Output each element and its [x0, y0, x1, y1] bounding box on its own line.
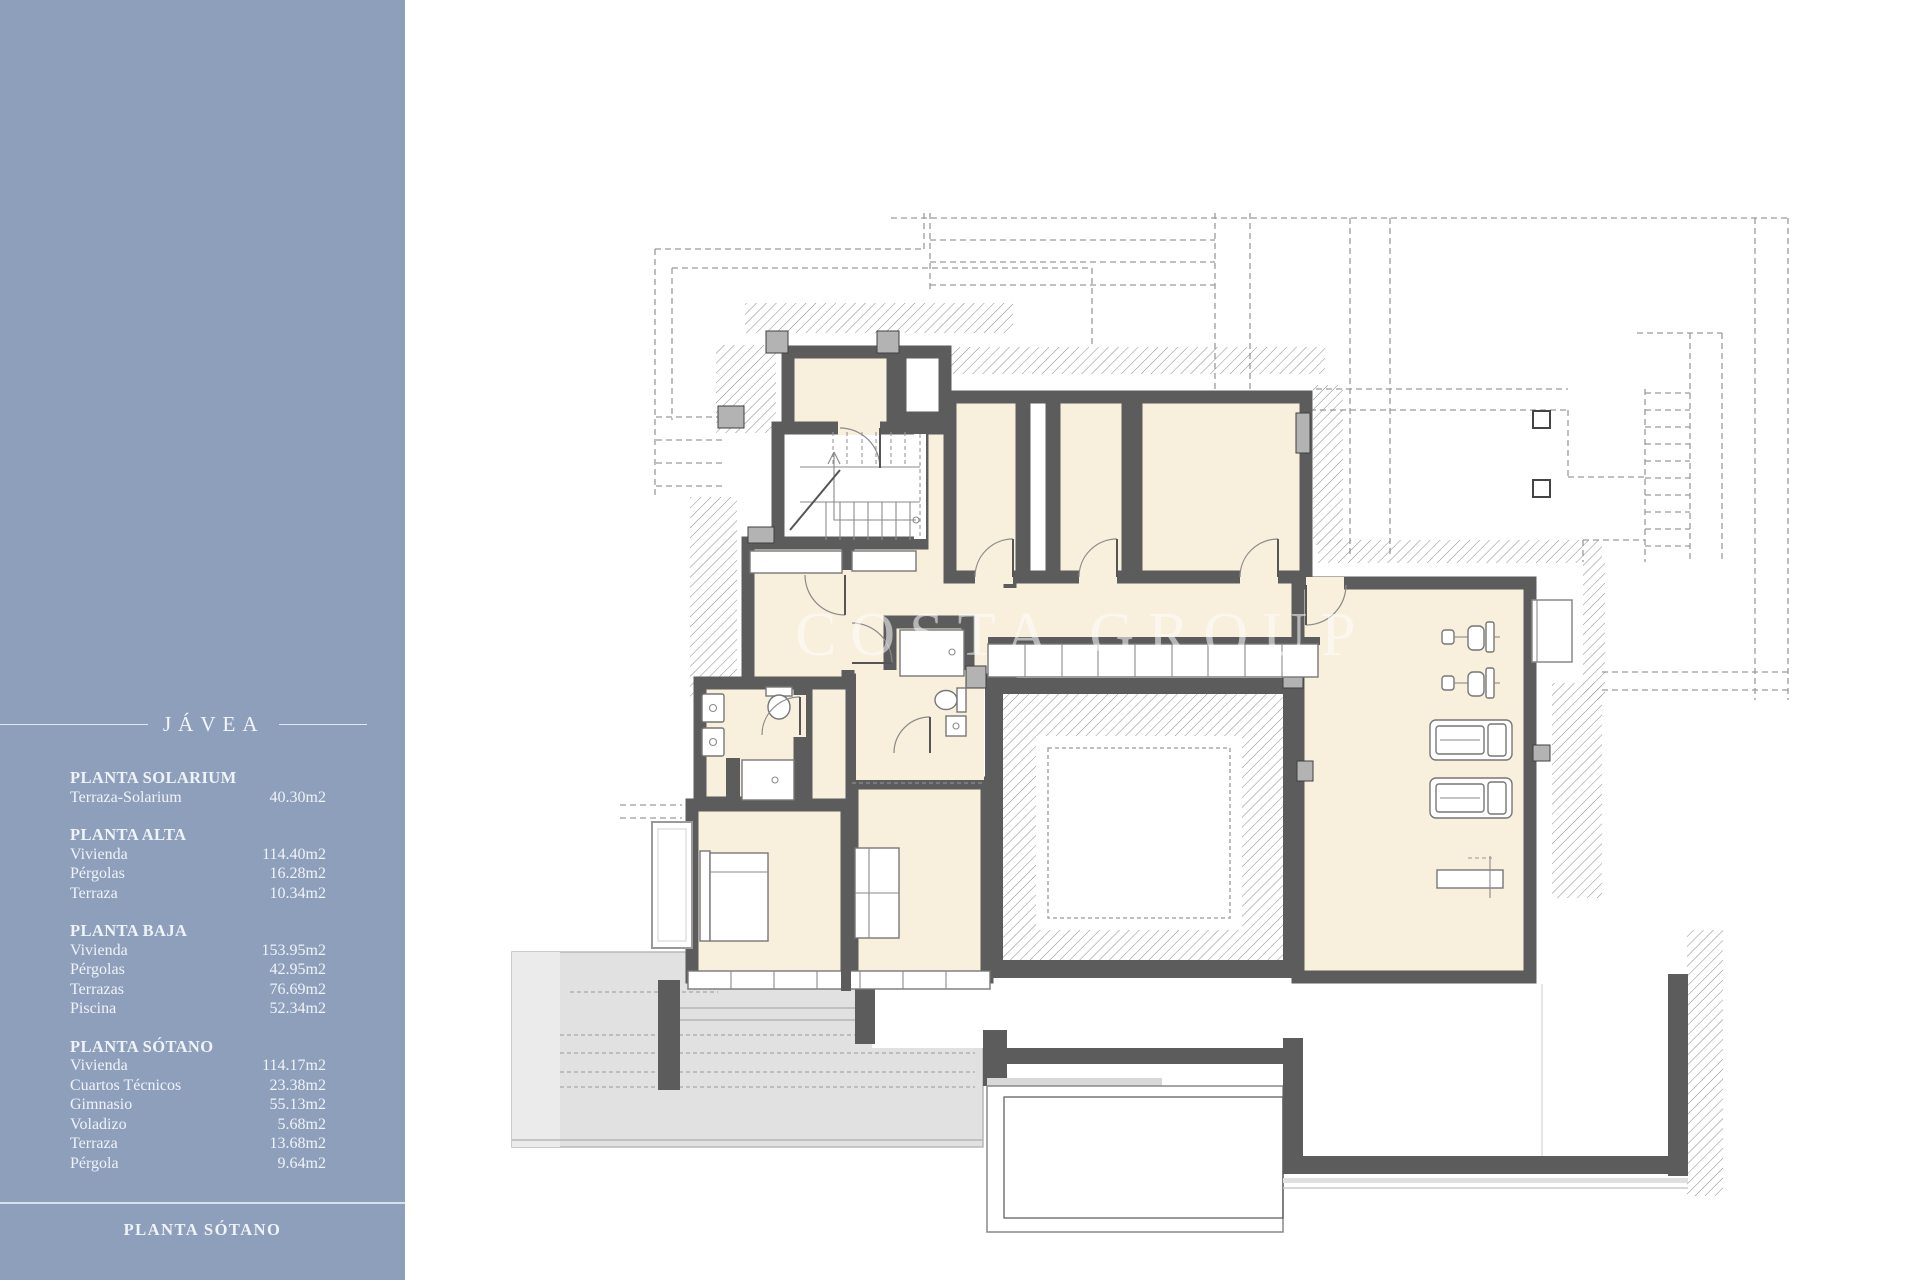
- area-row: Terrazas76.69m2: [70, 980, 326, 1000]
- area-value: 13.68m2: [270, 1134, 326, 1154]
- window-row: [688, 969, 990, 991]
- area-section: PLANTA SOLARIUMTerraza-Solarium40.30m2: [70, 768, 326, 807]
- area-row: Piscina52.34m2: [70, 999, 326, 1019]
- area-value: 55.13m2: [270, 1095, 326, 1115]
- area-value: 5.68m2: [278, 1115, 326, 1135]
- area-label: Vivienda: [70, 845, 128, 865]
- area-row: Voladizo5.68m2: [70, 1115, 326, 1135]
- area-label: Voladizo: [70, 1115, 127, 1135]
- area-row: Pérgolas16.28m2: [70, 864, 326, 884]
- area-label: Pérgolas: [70, 864, 125, 884]
- planter: [652, 822, 692, 948]
- shower-icon: [742, 760, 794, 800]
- project-title: JÁVEA: [163, 712, 265, 737]
- area-label: Terraza-Solarium: [70, 788, 182, 808]
- sofa-icon: [855, 848, 899, 938]
- toilet-icon: [935, 691, 957, 710]
- area-value: 153.95m2: [262, 941, 326, 961]
- technical-room-c: [1136, 397, 1306, 577]
- area-label: Piscina: [70, 999, 116, 1019]
- area-value: 114.40m2: [262, 845, 326, 865]
- area-row: Vivienda114.17m2: [70, 1056, 326, 1076]
- closet: [900, 352, 945, 418]
- area-row: Terraza10.34m2: [70, 884, 326, 904]
- section-header: PLANTA SÓTANO: [70, 1037, 326, 1057]
- title-rule-left: [0, 724, 148, 726]
- area-section: PLANTA BAJAVivienda153.95m2Pérgolas42.95…: [70, 921, 326, 1019]
- area-value: 52.34m2: [270, 999, 326, 1019]
- area-row: Vivienda153.95m2: [70, 941, 326, 961]
- area-row: Terraza13.68m2: [70, 1134, 326, 1154]
- area-row: Vivienda114.40m2: [70, 845, 326, 865]
- sidebar-title-row: JÁVEA: [0, 712, 405, 737]
- watermark: COSTA GROUP: [795, 601, 1370, 669]
- area-row: Pérgolas42.95m2: [70, 960, 326, 980]
- courtyard: [985, 678, 1301, 978]
- treadmill-icon: [1430, 778, 1512, 818]
- pergola-pillar-icon: [1533, 411, 1550, 428]
- pergola-pillar-icon: [1533, 480, 1550, 497]
- section-header: PLANTA BAJA: [70, 921, 326, 941]
- footer-divider: [0, 1202, 405, 1204]
- area-label: Cuartos Técnicos: [70, 1076, 181, 1096]
- area-value: 10.34m2: [270, 884, 326, 904]
- area-section: PLANTA SÓTANOVivienda114.17m2Cuartos Téc…: [70, 1037, 326, 1174]
- area-value: 9.64m2: [278, 1154, 326, 1174]
- stairwell: [778, 428, 922, 543]
- area-label: Pérgolas: [70, 960, 125, 980]
- area-value: 76.69m2: [270, 980, 326, 1000]
- area-label: Pérgola: [70, 1154, 119, 1174]
- treadmill-icon: [1430, 720, 1512, 760]
- sink-icon: [946, 716, 966, 736]
- area-section: PLANTA ALTAVivienda114.40m2Pérgolas16.28…: [70, 825, 326, 903]
- sidebar-sections: PLANTA SOLARIUMTerraza-Solarium40.30m2PL…: [70, 768, 326, 1191]
- sidebar: JÁVEA PLANTA SOLARIUMTerraza-Solarium40.…: [0, 0, 405, 1280]
- area-label: Vivienda: [70, 1056, 128, 1076]
- floor-label: PLANTA SÓTANO: [0, 1220, 405, 1240]
- bed-icon: [700, 851, 768, 941]
- area-value: 114.17m2: [262, 1056, 326, 1076]
- window-bay: [1532, 600, 1572, 662]
- area-value: 42.95m2: [270, 960, 326, 980]
- pool-outline: [987, 1086, 1283, 1232]
- room-top-left: [788, 352, 893, 428]
- area-value: 23.38m2: [270, 1076, 326, 1096]
- area-row: Cuartos Técnicos23.38m2: [70, 1076, 326, 1096]
- title-rule-right: [279, 724, 367, 726]
- section-header: PLANTA ALTA: [70, 825, 326, 845]
- inner-lobby: [806, 683, 852, 805]
- area-label: Vivienda: [70, 941, 128, 961]
- area-label: Gimnasio: [70, 1095, 132, 1115]
- area-label: Terraza: [70, 884, 118, 904]
- area-row: Terraza-Solarium40.30m2: [70, 788, 326, 808]
- area-label: Terraza: [70, 1134, 118, 1154]
- area-label: Terrazas: [70, 980, 124, 1000]
- section-header: PLANTA SOLARIUM: [70, 768, 326, 788]
- terraces: [512, 952, 1688, 1232]
- area-row: Gimnasio55.13m2: [70, 1095, 326, 1115]
- area-value: 40.30m2: [270, 788, 326, 808]
- area-row: Pérgola9.64m2: [70, 1154, 326, 1174]
- area-value: 16.28m2: [270, 864, 326, 884]
